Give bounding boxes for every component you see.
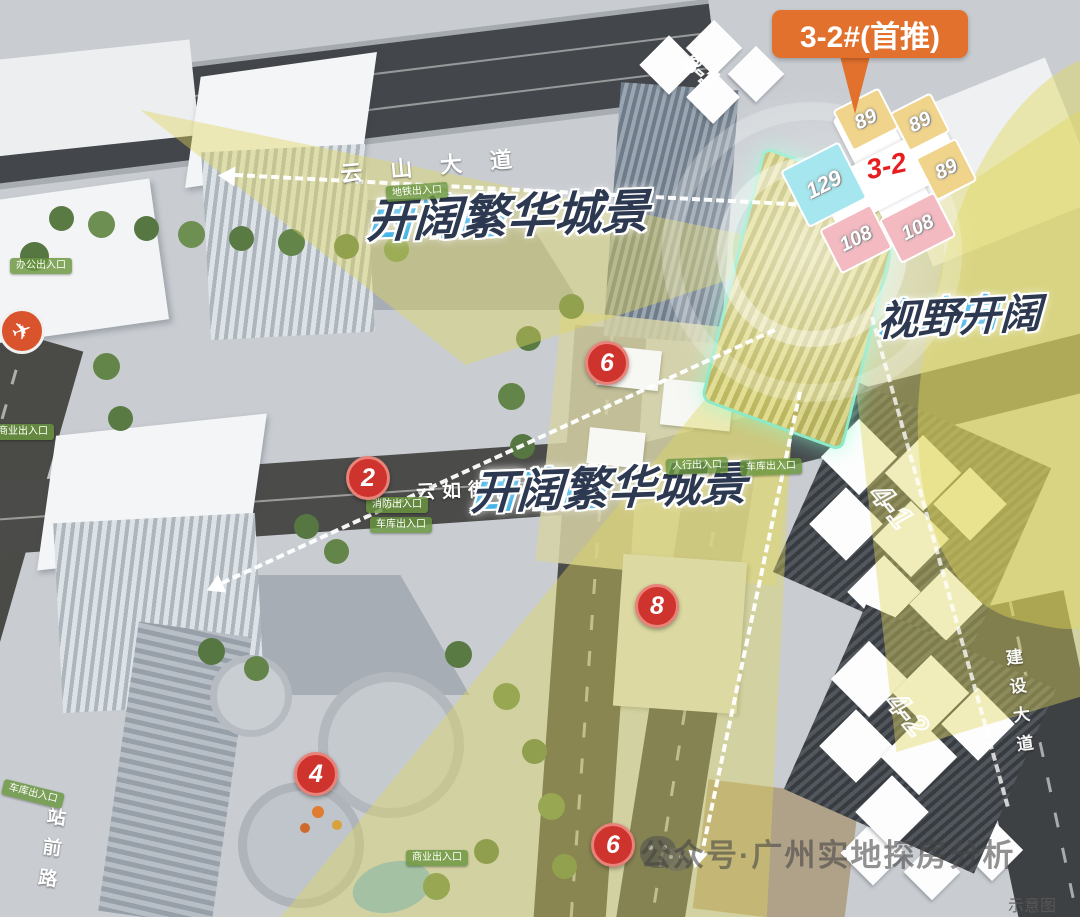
entrance-label: 商业出入口 bbox=[406, 850, 468, 866]
entrance-label: 车库出入口 bbox=[1, 779, 65, 810]
site-number-badge: 6 bbox=[585, 341, 629, 385]
site-plan-canvas: 云山大道 云如街 站前路 建设大道 3-1 4-1 4-2 地铁出入口 办公出入… bbox=[0, 0, 1080, 917]
entrance-label: 人行出入口 bbox=[666, 457, 729, 475]
site-number-badge: 6 bbox=[591, 823, 635, 867]
entrance-label: 商业出入口 bbox=[0, 424, 54, 440]
playground-dot bbox=[312, 806, 324, 818]
callout-pointer bbox=[840, 56, 870, 114]
playground-dot bbox=[332, 820, 342, 830]
watermark-text: 公众号·广州实地探房分析 bbox=[640, 830, 1015, 875]
entrance-label: 车库出入口 bbox=[370, 517, 432, 533]
playground-dot bbox=[300, 823, 310, 833]
transit-marker: ✈ bbox=[0, 308, 45, 354]
site-number-badge: 2 bbox=[346, 456, 390, 500]
callout-3-2-first-launch: 3-2#(首推) bbox=[772, 10, 968, 58]
schematic-note: 示意图 bbox=[1008, 892, 1056, 916]
entrance-label: 车库出入口 bbox=[740, 458, 803, 476]
entrance-label: 消防出入口 bbox=[366, 497, 428, 513]
arrowhead-west bbox=[217, 166, 235, 187]
annotation-desc: 视野开阔 bbox=[877, 291, 1042, 344]
site-number-badge: 8 bbox=[635, 584, 679, 628]
entrance-label: 办公出入口 bbox=[10, 258, 72, 274]
street-label-zhanqian: 站前路 bbox=[30, 805, 70, 901]
trees-layer bbox=[0, 0, 13, 13]
site-number-badge: 4 bbox=[294, 752, 338, 796]
plaza-circle bbox=[210, 655, 292, 737]
airplane-icon: ✈ bbox=[8, 314, 37, 348]
